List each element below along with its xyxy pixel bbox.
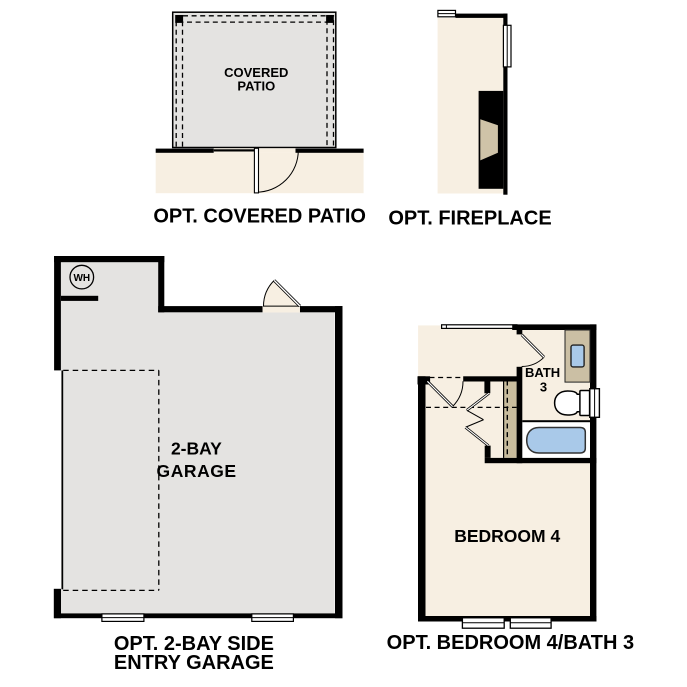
- svg-text:OPT. COVERED PATIO: OPT. COVERED PATIO: [153, 206, 366, 228]
- svg-text:OPT. FIREPLACE: OPT. FIREPLACE: [388, 207, 551, 229]
- svg-text:PATIO: PATIO: [237, 78, 275, 93]
- svg-text:GARAGE: GARAGE: [157, 461, 237, 481]
- svg-text:3: 3: [540, 380, 547, 395]
- svg-text:2-BAY: 2-BAY: [171, 439, 222, 459]
- svg-text:ENTRY GARAGE: ENTRY GARAGE: [114, 652, 274, 674]
- svg-text:WH: WH: [73, 273, 90, 284]
- svg-text:BATH: BATH: [525, 365, 560, 380]
- svg-text:OPT. BEDROOM 4/BATH 3: OPT. BEDROOM 4/BATH 3: [387, 632, 634, 654]
- svg-text:BEDROOM 4: BEDROOM 4: [454, 526, 560, 546]
